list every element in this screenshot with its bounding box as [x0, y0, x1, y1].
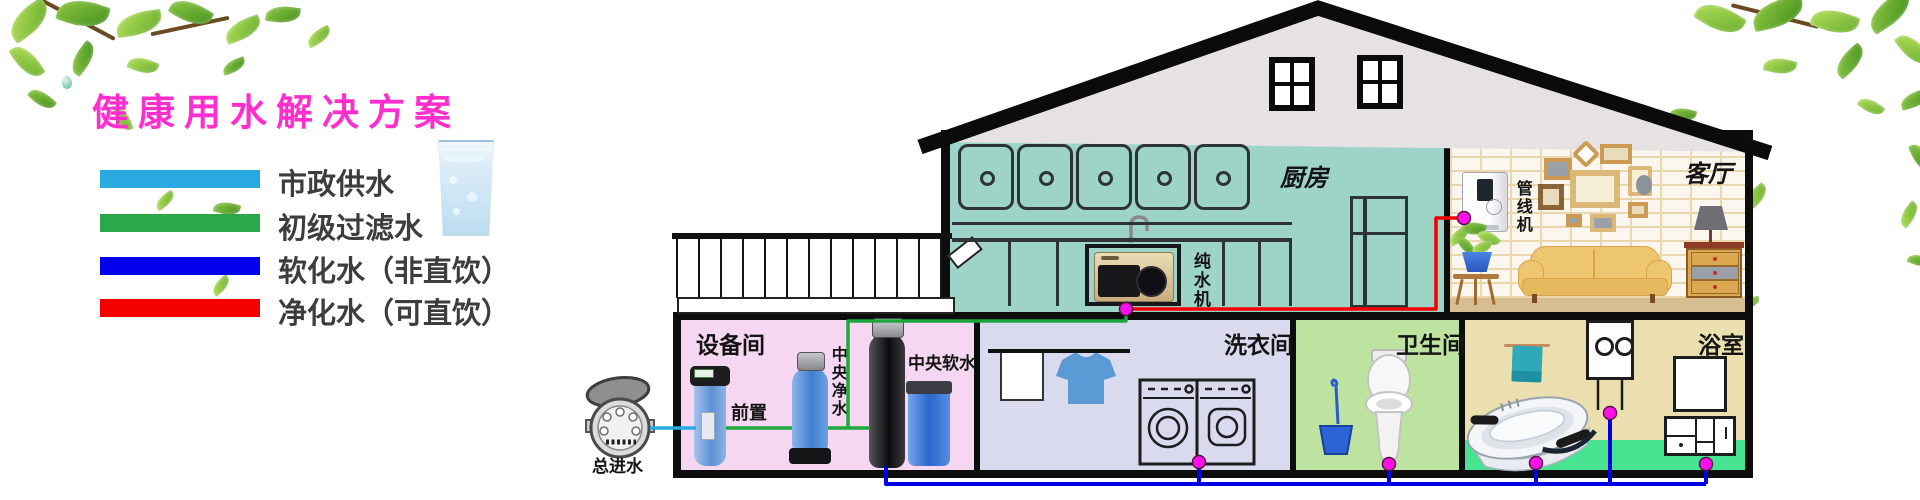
pipe-joint-dot	[1700, 458, 1713, 471]
pipe-filtered-riser	[848, 309, 1126, 428]
pipe-joint-dot	[1120, 303, 1133, 316]
pipe-joint-dot	[1458, 212, 1471, 225]
pipe-purified	[1126, 218, 1464, 309]
pipes-layer	[0, 0, 1920, 500]
pipe-joint-dot	[1604, 407, 1617, 420]
water-solution-banner: 健康用水解决方案 市政供水 初级过滤水 软化水（非直饮） 净化水（可直饮）	[0, 0, 1920, 500]
pipe-joint-dot	[1383, 458, 1396, 471]
pipe-joint-dot	[1530, 457, 1543, 470]
pipe-softened-main	[886, 466, 1706, 484]
pipe-joint-dot	[1193, 456, 1206, 469]
